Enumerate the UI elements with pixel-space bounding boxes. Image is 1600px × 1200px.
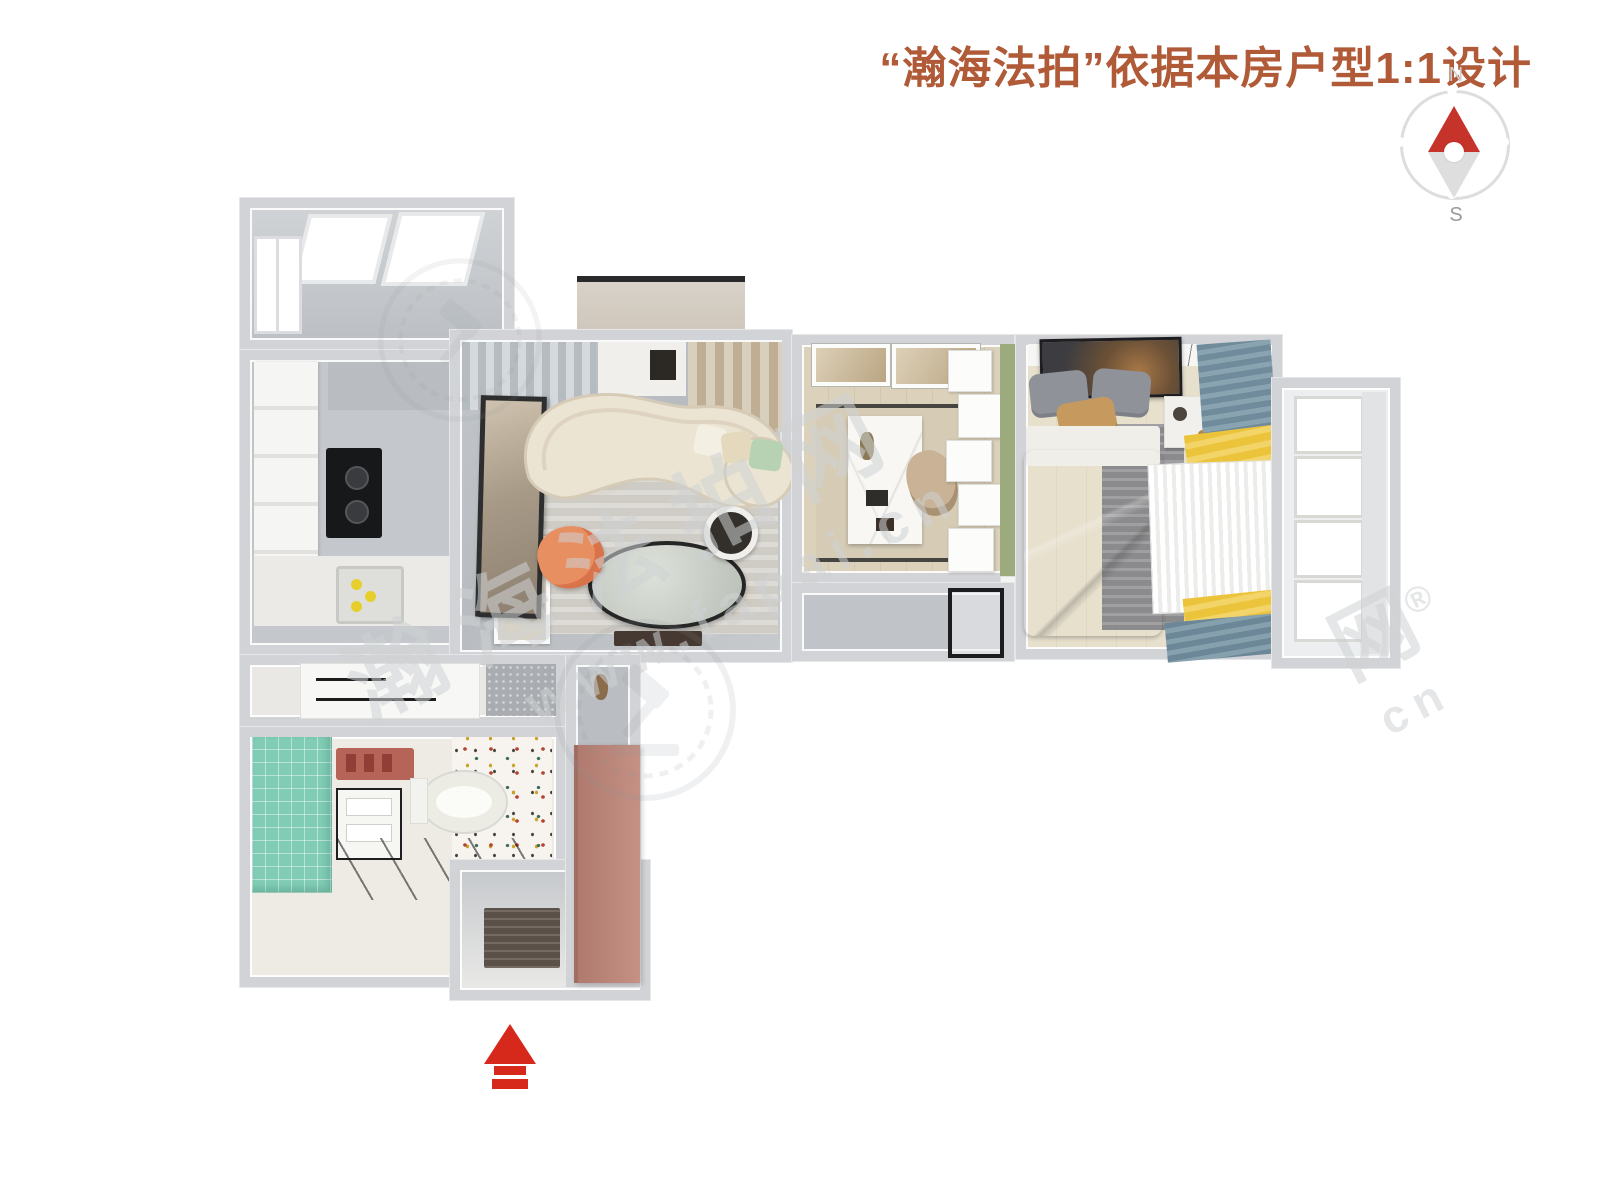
balcony-side-window <box>254 236 302 334</box>
study-cabinet <box>948 528 994 572</box>
lemon <box>351 579 362 590</box>
entry-shoe-cabinet <box>574 745 640 983</box>
speaker-box <box>650 350 676 380</box>
entrance-arrow-bar <box>492 1079 528 1089</box>
entrance-arrow-bar <box>494 1066 526 1075</box>
kitchen-range-hood <box>328 362 452 410</box>
compass: N S <box>1398 66 1514 226</box>
teal-tile-wall <box>252 737 332 893</box>
doorway-runner-mat <box>614 631 702 646</box>
compass-ring-gap <box>1447 85 1457 95</box>
compass-north-label: N <box>1449 64 1463 87</box>
study-cabinet <box>948 350 992 392</box>
laundry-counter <box>486 664 556 716</box>
lemon <box>365 591 376 602</box>
toilet <box>420 770 508 834</box>
bathroom-shelf <box>336 748 414 780</box>
kitchen-sink <box>336 566 404 624</box>
kitchen-cooktop <box>326 448 382 538</box>
skylight-window <box>291 214 392 284</box>
green-accent-wall <box>1000 344 1016 576</box>
cooktop-burner <box>345 500 369 524</box>
side-table <box>704 506 758 560</box>
balcony-window-pane <box>1294 456 1364 518</box>
toilet-tank <box>410 778 428 824</box>
registered-mark: ® <box>1397 575 1439 624</box>
compass-south-label: S <box>1449 204 1462 227</box>
nightstand-basket <box>1173 407 1187 421</box>
bottle <box>382 754 392 772</box>
balcony-window-pane <box>1294 580 1364 642</box>
compass-ring-gap <box>1395 137 1405 147</box>
cabinet-handle <box>316 698 436 701</box>
sofa-pillow-mint <box>748 438 784 472</box>
compass-ring-gap <box>1499 137 1509 147</box>
floorplan-stage: “瀚海法拍”依据本房户型1:1设计 N S <box>0 0 1600 1200</box>
wall-frame <box>812 344 890 386</box>
cabinet-handle <box>316 678 386 681</box>
glass-door <box>948 588 1004 658</box>
entrance-arrow-icon <box>484 1024 536 1064</box>
desk-plant <box>860 432 874 460</box>
balcony-inner-wall <box>1362 392 1386 654</box>
study-cabinet <box>946 440 992 482</box>
kitchen-cabinets <box>254 362 318 556</box>
bed-duvet <box>1024 450 1162 636</box>
desk-item <box>866 490 888 506</box>
bottle <box>364 754 374 772</box>
balcony-window-pane <box>1294 396 1364 454</box>
lemon <box>351 601 362 612</box>
balcony-window-pane <box>1294 520 1364 578</box>
bottle <box>346 754 356 772</box>
compass-center-dot <box>1444 142 1464 162</box>
cooktop-burner <box>345 466 369 490</box>
desk-item <box>876 518 894 531</box>
entry-door-mat <box>484 908 560 968</box>
dried-plant <box>594 674 608 700</box>
towel <box>346 798 392 816</box>
laundry-cabinet <box>300 663 480 719</box>
